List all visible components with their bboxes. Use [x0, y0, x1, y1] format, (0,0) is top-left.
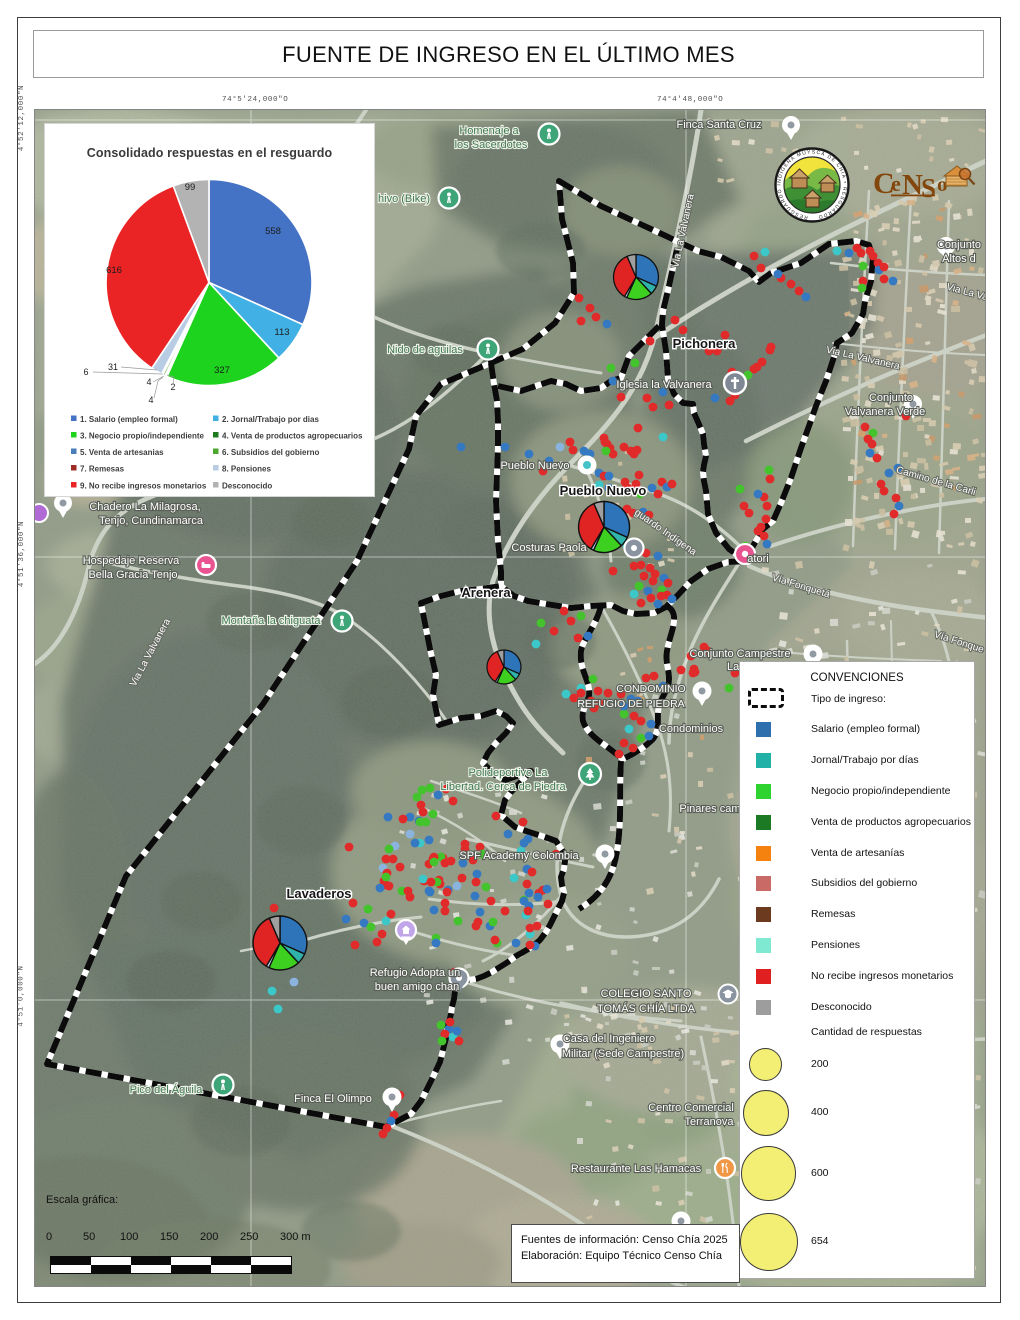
svg-text:558: 558: [265, 226, 281, 237]
svg-text:Desconocido: Desconocido: [222, 482, 272, 491]
svg-text:1. Salario (empleo formal): 1. Salario (empleo formal): [80, 415, 178, 424]
svg-text:los Sacerdotes: los Sacerdotes: [455, 139, 528, 151]
svg-text:Pinares camp: Pinares camp: [679, 803, 746, 815]
svg-text:Finca El Olimpo: Finca El Olimpo: [294, 1093, 372, 1105]
svg-text:buen amigo chan: buen amigo chan: [375, 981, 459, 993]
svg-text:4: 4: [146, 377, 151, 387]
svg-text:Condominios: Condominios: [659, 723, 724, 735]
svg-text:Libertad. Cerca de Piedra: Libertad. Cerca de Piedra: [440, 781, 566, 793]
svg-text:99: 99: [185, 182, 196, 193]
svg-text:Valvanera Verde: Valvanera Verde: [845, 406, 926, 418]
svg-text:hivo (Bike): hivo (Bike): [378, 193, 430, 205]
svg-text:atori: atori: [747, 553, 768, 565]
svg-text:4. Venta de productos agropecu: 4. Venta de productos agropecuarios: [222, 432, 363, 441]
svg-text:Chadero La Milagrosa,: Chadero La Milagrosa,: [89, 501, 200, 513]
svg-text:Tenjo, Cundinamarca: Tenjo, Cundinamarca: [99, 515, 204, 527]
svg-text:31: 31: [108, 362, 118, 372]
svg-text:327: 327: [214, 365, 230, 376]
svg-text:S: S: [921, 173, 936, 203]
svg-text:e: e: [891, 171, 901, 196]
svg-text:6: 6: [83, 367, 88, 377]
svg-text:3. Negocio propio/independient: 3. Negocio propio/independiente: [80, 432, 205, 441]
svg-text:Lavaderos: Lavaderos: [286, 886, 351, 901]
svg-text:Polideportivo La: Polideportivo La: [469, 767, 549, 779]
svg-text:9. No recibe ingresos monetari: 9. No recibe ingresos monetarios: [80, 482, 207, 491]
svg-text:Iglesia la Valvanera: Iglesia la Valvanera: [616, 379, 712, 391]
svg-text:Conjunto Campestre: Conjunto Campestre: [690, 648, 791, 660]
svg-text:Conjunto: Conjunto: [937, 239, 981, 251]
svg-text:4: 4: [148, 395, 153, 405]
svg-text:Pueblo Nuevo: Pueblo Nuevo: [560, 483, 647, 498]
svg-text:Bella Gracia Tenjo: Bella Gracia Tenjo: [88, 569, 177, 581]
svg-text:Pueblo Nuevo: Pueblo Nuevo: [500, 460, 569, 472]
svg-text:7. Remesas: 7. Remesas: [80, 465, 125, 474]
svg-text:6. Subsidios del gobierno: 6. Subsidios del gobierno: [222, 448, 319, 457]
svg-text:8. Pensiones: 8. Pensiones: [222, 465, 271, 474]
svg-text:Altos d: Altos d: [942, 253, 976, 265]
svg-text:Montaña la chiguata: Montaña la chiguata: [221, 615, 321, 627]
svg-text:Pico del Águila: Pico del Águila: [130, 1083, 204, 1096]
svg-text:TOMÁS CHÍA LTDA: TOMÁS CHÍA LTDA: [597, 1002, 696, 1015]
svg-text:REFUGIO DE PIEDRA: REFUGIO DE PIEDRA: [577, 698, 684, 710]
svg-text:CONDOMINIO: CONDOMINIO: [616, 683, 685, 695]
svg-text:Costuras Paola: Costuras Paola: [511, 542, 587, 554]
svg-text:2. Jornal/Trabajo por dias: 2. Jornal/Trabajo por dias: [222, 415, 319, 424]
svg-text:5. Venta de artesanias: 5. Venta de artesanias: [80, 448, 164, 457]
svg-text:Casa del Ingeniero: Casa del Ingeniero: [563, 1033, 655, 1045]
svg-text:Refugio Adopta un: Refugio Adopta un: [370, 967, 461, 979]
svg-text:Centro Comercial: Centro Comercial: [648, 1102, 734, 1114]
svg-text:Restaurante Las Hamacas: Restaurante Las Hamacas: [571, 1163, 702, 1175]
svg-text:SPF Academy Colombia: SPF Academy Colombia: [459, 850, 579, 862]
svg-text:Conjunto: Conjunto: [869, 392, 913, 404]
svg-text:Hospedaje Reserva: Hospedaje Reserva: [83, 555, 180, 567]
svg-text:Arenera: Arenera: [461, 585, 511, 600]
svg-text:Nido de aguilas: Nido de aguilas: [387, 344, 463, 356]
svg-text:Militar (Sede Campestre): Militar (Sede Campestre): [562, 1048, 684, 1060]
svg-text:Homenaje a: Homenaje a: [459, 125, 519, 137]
svg-text:113: 113: [274, 327, 289, 338]
svg-text:Finca Santa Cruz: Finca Santa Cruz: [677, 119, 762, 131]
svg-text:Terranova: Terranova: [685, 1116, 735, 1128]
svg-text:Pichonera: Pichonera: [673, 336, 737, 351]
svg-text:COLEGIO SANTO: COLEGIO SANTO: [601, 988, 692, 1000]
svg-text:616: 616: [106, 265, 122, 276]
